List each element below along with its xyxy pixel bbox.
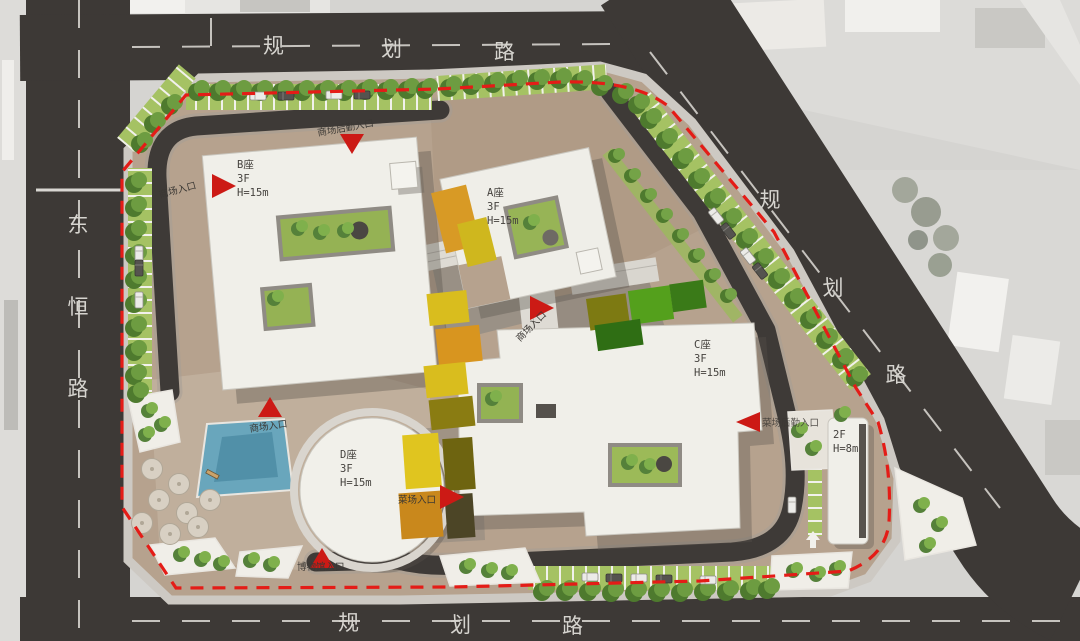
entrance-label-market: 菜场入口 <box>398 494 436 506</box>
building-d-floors: 3F <box>340 463 353 475</box>
building-c-floors: 3F <box>694 353 707 365</box>
building-c-name: C座 <box>694 338 711 351</box>
site-plan-canvas: B座 3F H=15m A座 3F H=15m C座 3F H=15m D座 3… <box>0 0 1080 641</box>
site-plan: B座 3F H=15m A座 3F H=15m C座 3F H=15m D座 3… <box>0 0 1080 641</box>
road-north-char-1: 规 <box>263 34 284 58</box>
road-north-char-3: 路 <box>494 40 515 64</box>
road-west-char-2: 恒 <box>68 295 89 319</box>
building-annex-height: H=8m <box>833 443 858 455</box>
road-east-char-3: 路 <box>886 363 907 387</box>
building-c <box>458 323 774 550</box>
entrance-label-museum: 博物馆入口 <box>297 561 345 573</box>
road-north-char-2: 划 <box>381 37 402 61</box>
building-a-floors: 3F <box>487 201 500 213</box>
road-west-char-1: 东 <box>68 213 89 237</box>
entrance-label-east: 菜场后勤入口 <box>762 417 819 429</box>
road-west-char-3: 路 <box>68 377 89 401</box>
road-east-char-2: 划 <box>823 276 844 300</box>
road-south-char-1: 规 <box>338 611 359 635</box>
road-south-char-2: 划 <box>450 613 471 637</box>
building-c-height: H=15m <box>694 367 726 379</box>
building-d-name: D座 <box>340 448 357 461</box>
building-d-height: H=15m <box>340 477 372 489</box>
road-south-char-3: 路 <box>562 614 583 638</box>
building-b-floors: 3F <box>237 173 250 185</box>
building-a-height: H=15m <box>487 215 519 227</box>
building-annex-floors: 2F <box>833 429 846 441</box>
building-b-height: H=15m <box>237 187 269 199</box>
road-east-char-1: 规 <box>760 188 781 212</box>
building-a-name: A座 <box>487 186 504 199</box>
building-b-name: B座 <box>237 158 254 171</box>
